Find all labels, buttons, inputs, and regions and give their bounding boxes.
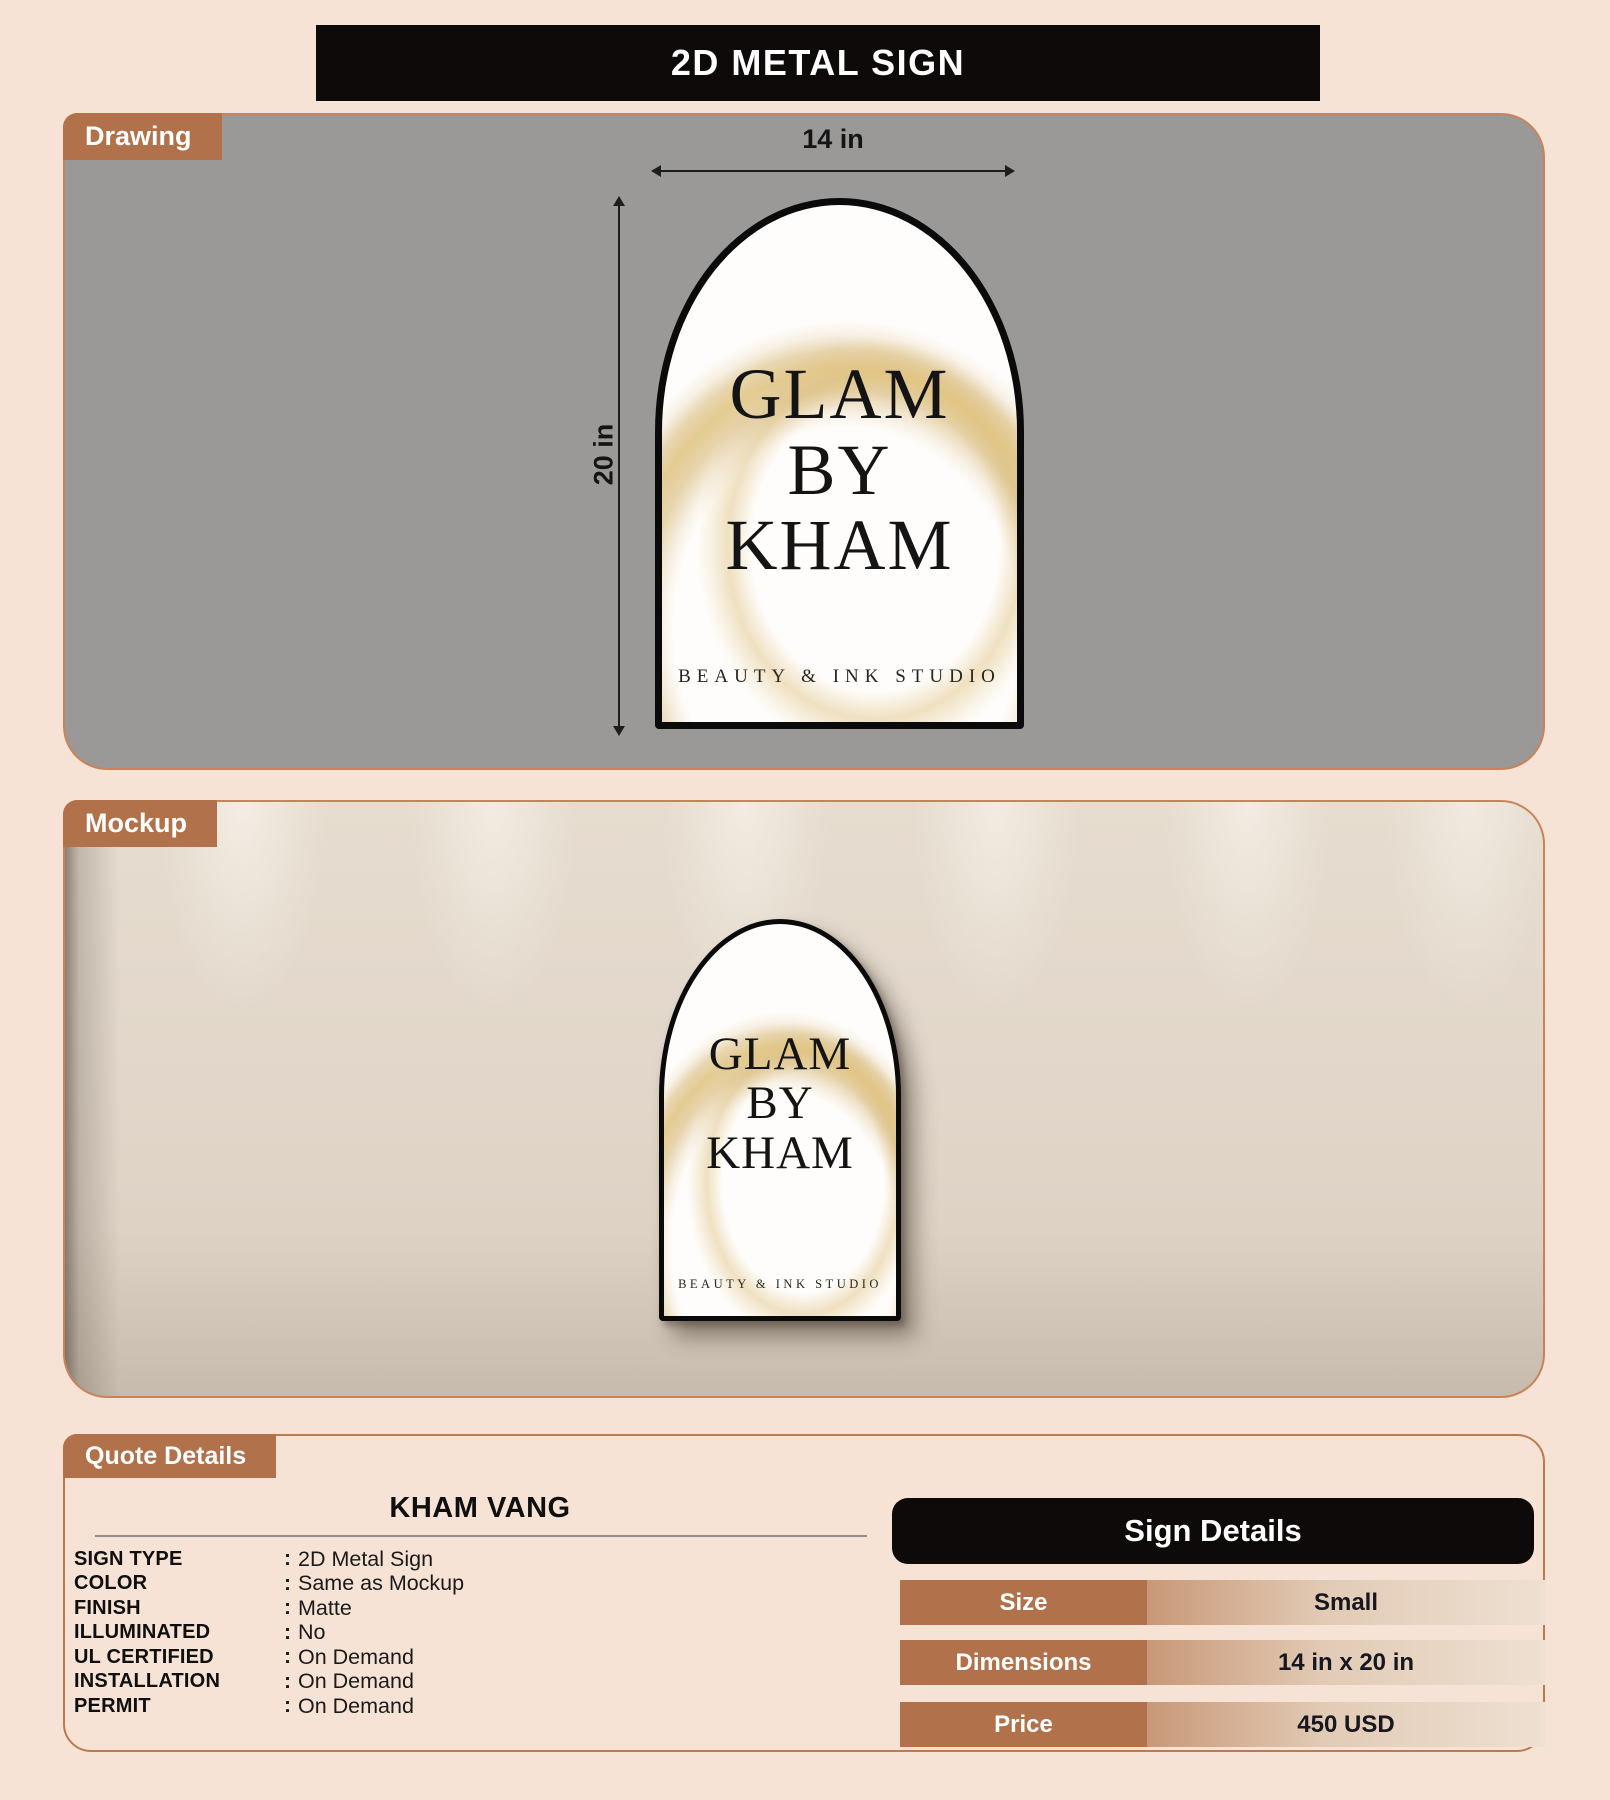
mockup-tab-label: Mockup: [85, 808, 187, 839]
field-separator: :: [284, 1596, 298, 1620]
field-value: No: [298, 1620, 325, 1645]
width-dimension-line: [653, 170, 1013, 172]
quote-field-row: FINISH : Matte: [74, 1596, 464, 1621]
quote-field-row: SIGN TYPE : 2D Metal Sign: [74, 1547, 464, 1572]
width-dimension-label: 14 in: [653, 124, 1013, 155]
field-label: ILLUMINATED: [74, 1621, 284, 1644]
quote-field-row: INSTALLATION : On Demand: [74, 1670, 464, 1695]
quote-field-row: PERMIT : On Demand: [74, 1694, 464, 1719]
field-separator: :: [284, 1547, 298, 1571]
field-value: On Demand: [298, 1645, 414, 1670]
quote-tab-label: Quote Details: [85, 1442, 246, 1471]
row-label-cell: Price: [900, 1702, 1147, 1747]
sign-mockup-arch: GLAM BY KHAM BEAUTY & INK STUDIO: [659, 919, 901, 1321]
field-separator: :: [284, 1694, 298, 1718]
page-title-bar: 2D METAL SIGN: [316, 25, 1320, 101]
sign-logo-line3: KHAM: [725, 508, 953, 584]
sign-details-row-dimensions: Dimensions 14 in x 20 in: [900, 1640, 1545, 1685]
sign-logo-line1: GLAM: [730, 357, 950, 433]
customer-name: KHAM VANG: [80, 1492, 880, 1525]
sign-drawing-arch: GLAM BY KHAM BEAUTY & INK STUDIO: [655, 198, 1024, 729]
quote-details-tab: Quote Details: [63, 1434, 276, 1478]
sign-logo: GLAM BY KHAM: [664, 924, 896, 1316]
sign-details-row-price: Price 450 USD: [900, 1702, 1545, 1747]
sign-tagline: BEAUTY & INK STUDIO: [662, 666, 1017, 688]
sign-logo: GLAM BY KHAM: [662, 205, 1017, 722]
sign-tagline: BEAUTY & INK STUDIO: [664, 1277, 896, 1292]
height-dimension-label: 20 in: [589, 405, 620, 505]
field-label: FINISH: [74, 1597, 284, 1620]
dimension-arrow-right-icon: [1005, 165, 1015, 177]
field-value: On Demand: [298, 1669, 414, 1694]
dimension-arrow-left-icon: [651, 165, 661, 177]
row-value-cell: Small: [1147, 1580, 1545, 1625]
row-label-cell: Size: [900, 1580, 1147, 1625]
mockup-panel: GLAM BY KHAM BEAUTY & INK STUDIO: [63, 800, 1545, 1398]
quote-sheet: { "header": { "title": "2D METAL SIGN" }…: [0, 0, 1610, 1800]
mockup-section-tab: Mockup: [63, 800, 217, 847]
customer-name-divider: [95, 1535, 867, 1537]
drawing-tab-label: Drawing: [85, 121, 192, 152]
sign-details-row-size: Size Small: [900, 1580, 1545, 1625]
sign-logo-line3: KHAM: [706, 1129, 854, 1178]
quote-details-panel: KHAM VANG SIGN TYPE : 2D Metal Sign COLO…: [63, 1434, 1545, 1752]
drawing-section-tab: Drawing: [63, 113, 222, 160]
row-value-cell: 450 USD: [1147, 1702, 1545, 1747]
page-title: 2D METAL SIGN: [671, 42, 965, 84]
field-value: On Demand: [298, 1694, 414, 1719]
field-separator: :: [284, 1670, 298, 1694]
quote-field-row: COLOR : Same as Mockup: [74, 1572, 464, 1597]
drawing-panel: 14 in 20 in GLAM BY KHAM BEAUTY & INK ST…: [63, 113, 1545, 770]
quote-field-row: UL CERTIFIED : On Demand: [74, 1645, 464, 1670]
field-label: INSTALLATION: [74, 1670, 284, 1693]
sign-logo-line1: GLAM: [709, 1030, 851, 1079]
field-value: Matte: [298, 1596, 352, 1621]
sign-logo-line2: BY: [746, 1079, 813, 1128]
height-dimension-line: [618, 198, 620, 734]
sign-details-header: Sign Details: [892, 1498, 1534, 1564]
row-value-cell: 14 in x 20 in: [1147, 1640, 1545, 1685]
quote-field-row: ILLUMINATED : No: [74, 1621, 464, 1646]
field-label: COLOR: [74, 1572, 284, 1595]
field-value: Same as Mockup: [298, 1571, 464, 1596]
row-label-cell: Dimensions: [900, 1640, 1147, 1685]
field-label: SIGN TYPE: [74, 1548, 284, 1571]
sign-logo-line2: BY: [787, 433, 891, 509]
dimension-arrow-down-icon: [613, 726, 625, 736]
field-value: 2D Metal Sign: [298, 1547, 433, 1572]
field-label: UL CERTIFIED: [74, 1646, 284, 1669]
dimension-arrow-up-icon: [613, 196, 625, 206]
field-separator: :: [284, 1572, 298, 1596]
field-separator: :: [284, 1645, 298, 1669]
field-separator: :: [284, 1621, 298, 1645]
sign-details-title: Sign Details: [1124, 1513, 1301, 1549]
quote-fields-list: SIGN TYPE : 2D Metal Sign COLOR : Same a…: [74, 1547, 464, 1719]
field-label: PERMIT: [74, 1695, 284, 1718]
